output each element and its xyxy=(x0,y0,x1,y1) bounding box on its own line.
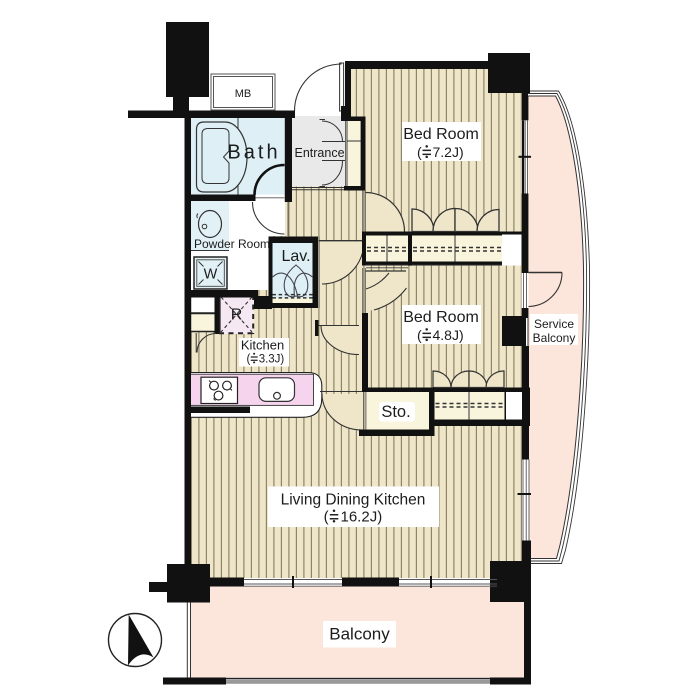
svg-text:Living Dining Kitchen: Living Dining Kitchen xyxy=(281,492,426,509)
svg-text:Powder Room: Powder Room xyxy=(194,237,270,251)
svg-text:16.2J): 16.2J) xyxy=(341,509,383,526)
svg-text:Lav.: Lav. xyxy=(281,248,310,265)
svg-text:R: R xyxy=(231,307,243,324)
svg-text:(: ( xyxy=(417,144,422,160)
svg-text:3.3J): 3.3J) xyxy=(259,354,285,366)
svg-text:Bed Room: Bed Room xyxy=(403,309,479,326)
svg-text:Balcony: Balcony xyxy=(533,331,576,345)
svg-text:Service: Service xyxy=(534,317,574,331)
svg-text:Sto.: Sto. xyxy=(381,403,410,421)
svg-text:(: ( xyxy=(417,327,422,343)
svg-text:Bath: Bath xyxy=(227,142,280,164)
svg-text:Entrance: Entrance xyxy=(294,146,344,160)
svg-text:Kitchen: Kitchen xyxy=(241,338,284,353)
svg-text:(: ( xyxy=(324,509,329,526)
svg-text:W: W xyxy=(204,267,218,283)
svg-text:4.8J): 4.8J) xyxy=(433,327,464,343)
svg-text:Bed Room: Bed Room xyxy=(403,126,479,143)
svg-text:7.2J): 7.2J) xyxy=(433,144,464,160)
svg-text:Balcony: Balcony xyxy=(329,625,390,644)
svg-text:MB: MB xyxy=(235,88,252,100)
svg-text:(: ( xyxy=(247,354,251,366)
